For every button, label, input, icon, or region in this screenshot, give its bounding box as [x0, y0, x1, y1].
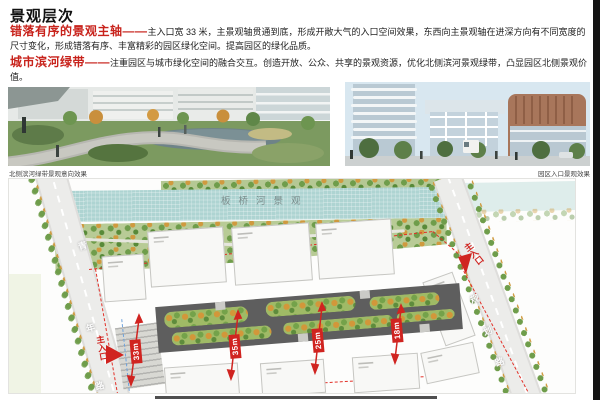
photo-riverside-caption: 北侧滨河绿带景观意向效果	[9, 168, 87, 178]
green-island	[171, 325, 272, 346]
green-island	[283, 314, 394, 335]
dimension-label-25m: 25m	[311, 328, 324, 353]
building-block	[147, 226, 227, 287]
crosswalk	[215, 302, 226, 311]
building-block	[231, 222, 313, 285]
river-name-label: 板桥河景观	[221, 193, 309, 207]
building-block	[315, 218, 395, 279]
central-landscape-axis	[155, 283, 463, 353]
page-edge-bar	[593, 0, 600, 400]
green-island	[265, 295, 356, 317]
green-island	[164, 306, 249, 329]
riverside-render-graphic	[8, 87, 330, 166]
building-block	[352, 353, 420, 394]
photo-riverside-render	[8, 87, 330, 166]
building-block	[164, 362, 240, 394]
paragraph-river-belt-lead: 城市滨河绿带——	[10, 55, 110, 69]
crosswalk	[360, 290, 371, 299]
green-island	[369, 292, 440, 310]
building-block	[260, 359, 326, 394]
building-block	[101, 254, 146, 303]
dimension-label-18m: 18m	[390, 318, 403, 343]
green-area-west	[9, 274, 41, 394]
dimension-label-35m: 35m	[228, 334, 241, 359]
crosswalk	[419, 324, 430, 333]
page-title: 景观层次	[10, 5, 74, 26]
photo-entrance-caption: 园区入口景观效果	[450, 168, 590, 178]
paragraph-main-axis-lead: 错落有序的景观主轴——	[10, 24, 148, 38]
photo-entrance-render	[345, 82, 590, 166]
paragraph-river-belt: 城市滨河绿带——注重园区与城市绿化空间的融合交互。创造开放、公众、共享的景观资源…	[10, 56, 593, 84]
green-island	[396, 309, 455, 324]
crosswalk	[298, 333, 309, 342]
dimension-label-33m: 33m	[129, 339, 142, 364]
entrance-render-graphic	[345, 82, 590, 166]
paragraph-main-axis: 错落有序的景观主轴——主入口宽 33 米，主景观轴贯通到底，形成开敞大气的入口空…	[10, 25, 593, 53]
building-block	[420, 342, 479, 385]
site-plan: 板桥河景观 青 年 路 规 划 路 主入口 主入口 33m 35m 25m 18…	[8, 178, 576, 394]
bottom-divider-bar	[155, 396, 437, 399]
